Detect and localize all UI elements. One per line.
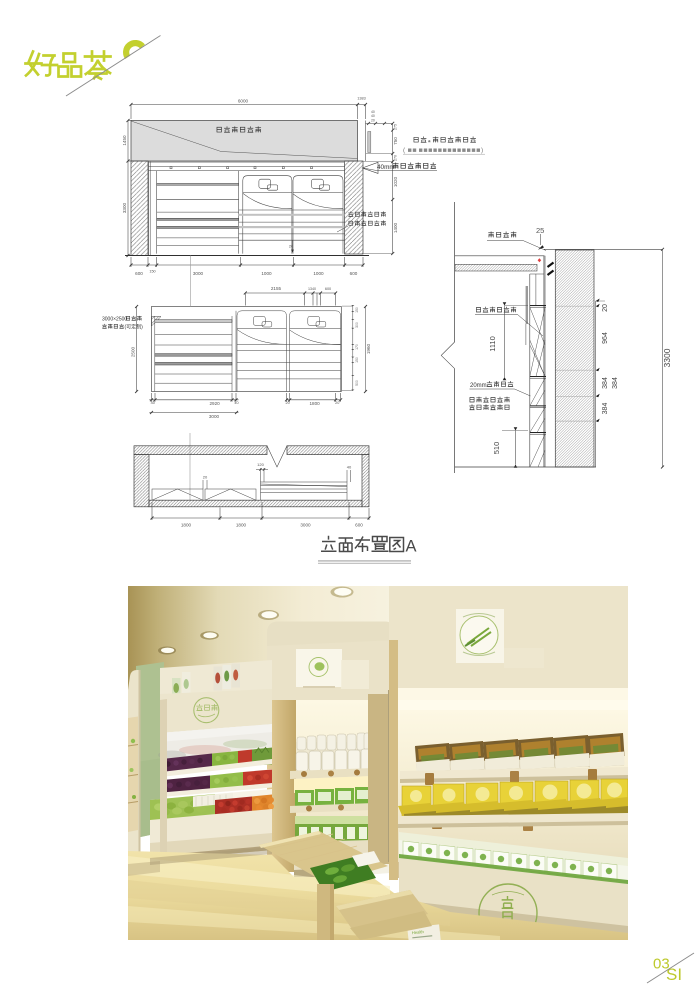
svg-text:3000: 3000 <box>209 414 220 419</box>
svg-text:2920: 2920 <box>209 401 220 406</box>
svg-text:A: A <box>406 538 417 556</box>
svg-text:750: 750 <box>393 137 398 145</box>
svg-text:SI: SI <box>666 965 682 984</box>
svg-text:3300: 3300 <box>662 348 672 367</box>
svg-text:270: 270 <box>394 155 398 161</box>
svg-text:1020: 1020 <box>393 176 398 187</box>
svg-text:384: 384 <box>612 377 619 389</box>
svg-text:1340: 1340 <box>308 287 316 291</box>
svg-text:1800: 1800 <box>309 401 320 406</box>
svg-text:6000: 6000 <box>238 99 249 104</box>
svg-text:2155: 2155 <box>271 286 282 291</box>
svg-text:3300: 3300 <box>122 202 127 213</box>
svg-text:600: 600 <box>325 287 331 291</box>
svg-text:1000: 1000 <box>313 271 324 276</box>
svg-text:384: 384 <box>602 377 609 389</box>
svg-text:1800: 1800 <box>236 523 247 528</box>
svg-text:20: 20 <box>335 401 339 405</box>
svg-text:25: 25 <box>536 226 544 235</box>
svg-text:150: 150 <box>149 270 155 274</box>
svg-text:40: 40 <box>151 401 155 405</box>
svg-text:510: 510 <box>492 442 501 455</box>
svg-text:20: 20 <box>371 118 375 122</box>
svg-text:170: 170 <box>355 344 359 350</box>
svg-text:3000: 3000 <box>193 271 204 276</box>
svg-text:1383: 1383 <box>357 97 365 101</box>
svg-text:1960: 1960 <box>366 343 371 354</box>
svg-text:300: 300 <box>355 322 359 328</box>
svg-text:275: 275 <box>394 124 398 130</box>
svg-text:1000: 1000 <box>261 271 272 276</box>
svg-text:20: 20 <box>285 401 289 405</box>
svg-text:40: 40 <box>234 401 238 405</box>
svg-text:120: 120 <box>257 462 264 467</box>
svg-text:(可定制): (可定制) <box>125 324 144 331</box>
svg-text:600: 600 <box>350 271 358 276</box>
svg-text:3000×2500: 3000×2500 <box>102 317 127 323</box>
svg-text:2500: 2500 <box>131 346 136 357</box>
svg-text:600: 600 <box>135 271 143 276</box>
svg-text:150: 150 <box>355 307 359 313</box>
svg-text:3000: 3000 <box>300 523 311 528</box>
svg-text:40: 40 <box>347 465 352 470</box>
svg-text:20mm: 20mm <box>470 383 487 389</box>
svg-text:1400: 1400 <box>393 222 398 233</box>
svg-text:): ) <box>481 147 483 154</box>
svg-text:20: 20 <box>203 475 208 480</box>
svg-text:384: 384 <box>602 403 609 415</box>
svg-text:1800: 1800 <box>181 523 192 528</box>
svg-text:20: 20 <box>602 304 609 312</box>
svg-text:964: 964 <box>602 332 609 344</box>
svg-text:600: 600 <box>355 523 363 528</box>
svg-text:20: 20 <box>289 245 293 249</box>
svg-text:1450: 1450 <box>122 135 127 146</box>
svg-text:40mm: 40mm <box>377 164 395 171</box>
svg-text:500: 500 <box>355 380 359 386</box>
svg-text:1110: 1110 <box>488 336 497 352</box>
svg-text:150: 150 <box>355 357 359 363</box>
